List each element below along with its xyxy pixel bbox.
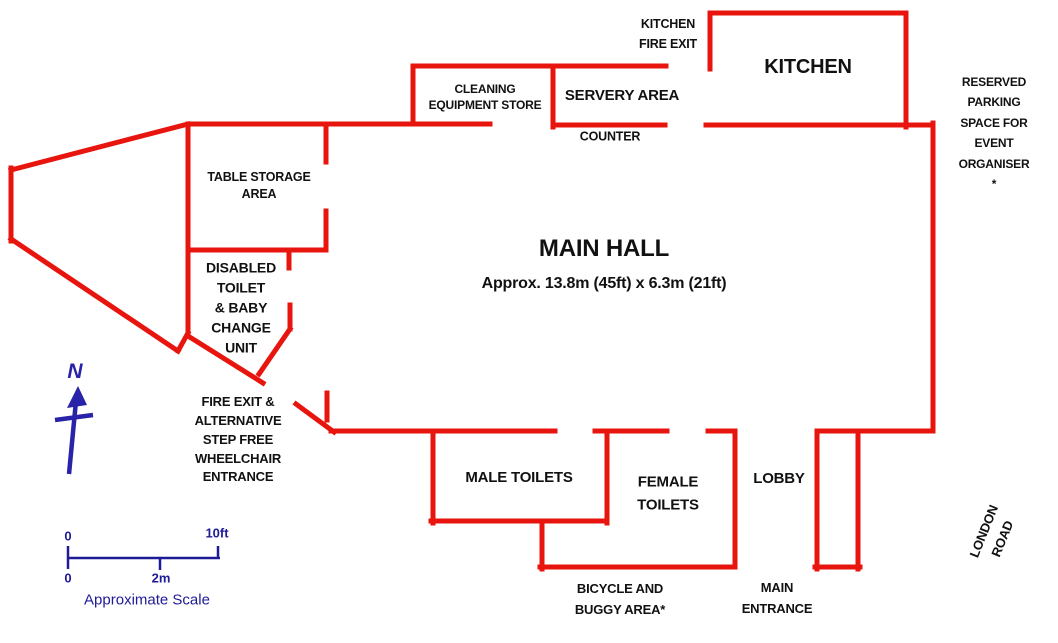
label-counter: COUNTER — [580, 128, 640, 147]
label-reserved-parking: RESERVED PARKING SPACE FOR EVENT ORGANIS… — [959, 72, 1030, 194]
label-fire-exit: FIRE EXIT & ALTERNATIVE STEP FREE WHEELC… — [195, 393, 282, 487]
label-lobby: LOBBY — [753, 468, 805, 491]
label-male-toilets: MALE TOILETS — [465, 467, 572, 490]
labels-layer: KITCHEN FIRE EXITKITCHENCLEANING EQUIPME… — [0, 0, 1058, 643]
label-kitchen-room: KITCHEN — [764, 52, 852, 82]
label-kitchen-fire-exit: KITCHEN FIRE EXIT — [639, 14, 697, 54]
label-female-toilets: FEMALE TOILETS — [637, 472, 699, 517]
label-table-storage-area: TABLE STORAGE AREA — [207, 169, 310, 203]
floor-plan: N 0 10ft 0 2m Approximate Scale KITCHEN … — [0, 0, 1058, 643]
label-main-hall-dimensions: Approx. 13.8m (45ft) x 6.3m (21ft) — [482, 272, 727, 296]
label-main-hall: MAIN HALL — [539, 231, 669, 267]
label-servery-area: SERVERY AREA — [565, 85, 679, 108]
label-bicycle-buggy-area: BICYCLE AND BUGGY AREA* — [575, 579, 665, 621]
label-london-road: LONDON ROAD — [963, 498, 1024, 573]
label-disabled-toilet: DISABLED TOILET & BABY CHANGE UNIT — [206, 258, 276, 357]
label-main-entrance: MAIN ENTRANCE — [742, 578, 813, 620]
label-cleaning-equipment-store: CLEANING EQUIPMENT STORE — [429, 81, 542, 113]
